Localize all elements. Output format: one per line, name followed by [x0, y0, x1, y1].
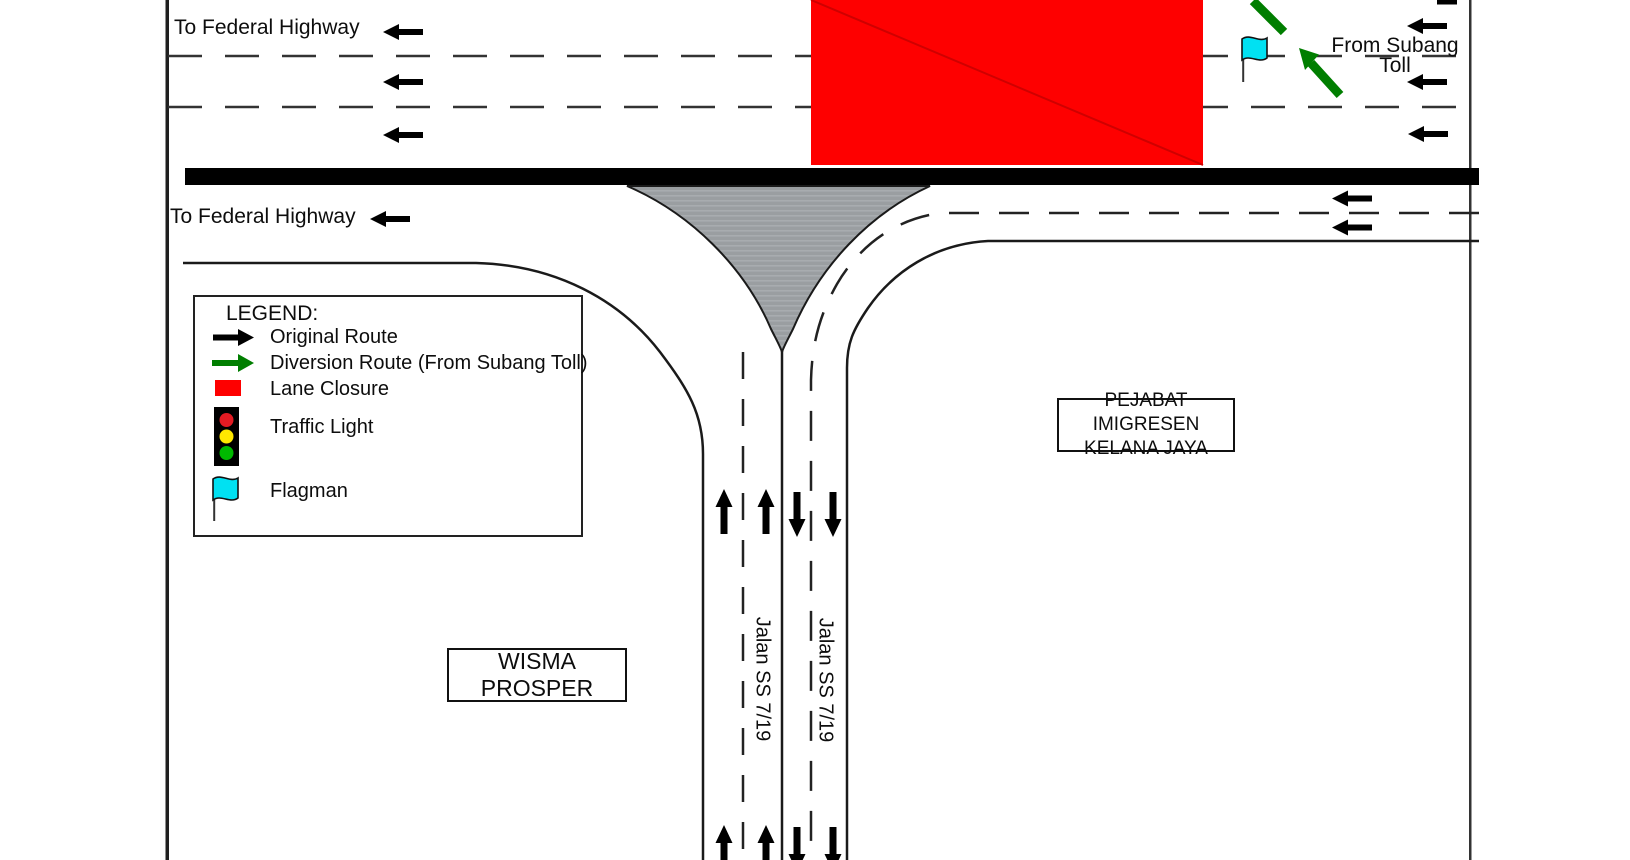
road-name-label-left: Jalan SS 7/19 [751, 617, 774, 742]
junction-island [627, 186, 930, 352]
flow-arrow-down [789, 492, 806, 537]
building-name-line1: PEJABAT IMIGRESEN [1059, 389, 1233, 437]
flagman-flag-icon [1242, 37, 1267, 60]
flow-arrow-down [825, 827, 842, 860]
flow-arrow-left [1407, 18, 1447, 34]
flow-arrow-left [383, 74, 423, 90]
from-subang-line2: Toll [1325, 56, 1465, 76]
diversion-arrow-shaft [1253, 1, 1284, 32]
from-subang-label: From Subang Toll [1325, 36, 1465, 76]
flow-arrow-left [1407, 74, 1447, 90]
border-right [1469, 0, 1472, 860]
flow-arrow-up [716, 825, 733, 860]
flow-arrow-down [789, 827, 806, 860]
lane-closure-swatch-icon [215, 380, 241, 396]
flagman-marker [1242, 37, 1267, 82]
flow-arrow-left [1332, 220, 1372, 236]
road-name-label-right: Jalan SS 7/19 [814, 618, 837, 743]
legend-item-traffic-light: Traffic Light [270, 416, 373, 439]
flow-arrow-up [716, 489, 733, 534]
building-name-line2: KELANA JAYA [1084, 437, 1208, 461]
destination-label-bottom: To Federal Highway [170, 206, 356, 228]
black-arrow-right-icon [213, 329, 255, 346]
southeast-road-edge [847, 241, 1479, 860]
border-left [166, 0, 170, 860]
flow-arrow-left [383, 127, 423, 143]
destination-label-top: To Federal Highway [174, 17, 360, 39]
diversion-plan-diagram: To Federal Highway To Federal Highway Fr… [0, 0, 1630, 860]
green-arrow-right-icon [212, 354, 255, 372]
east-road-centerline-dashed [811, 213, 1479, 860]
flow-arrow-up [758, 825, 775, 860]
flow-arrow-left [1332, 191, 1372, 207]
building-name: WISMA PROSPER [449, 648, 625, 702]
building-box-wisma: WISMA PROSPER [447, 648, 627, 702]
legend-item-flagman: Flagman [270, 480, 348, 503]
flow-arrow-left [1408, 126, 1448, 142]
legend-title: LEGEND: [226, 302, 318, 326]
flow-arrow-left [383, 24, 423, 40]
traffic-light-icon [214, 407, 240, 467]
from-subang-line1: From Subang [1325, 36, 1465, 56]
legend: LEGEND: Original Route Diversion Route (… [193, 295, 583, 537]
flow-arrow-left [370, 211, 410, 227]
flow-arrow-down [825, 492, 842, 537]
legend-item-diversion-route: Diversion Route (From Subang Toll) [270, 352, 588, 375]
legend-item-lane-closure: Lane Closure [270, 378, 389, 401]
flagman-flag-icon [212, 474, 242, 524]
flow-arrow-up [758, 489, 775, 534]
flow-arrow-fragment [1437, 0, 1457, 5]
legend-item-original-route: Original Route [270, 326, 398, 349]
building-box-immigration: PEJABAT IMIGRESEN KELANA JAYA [1057, 398, 1235, 452]
median-bar [185, 168, 1479, 185]
